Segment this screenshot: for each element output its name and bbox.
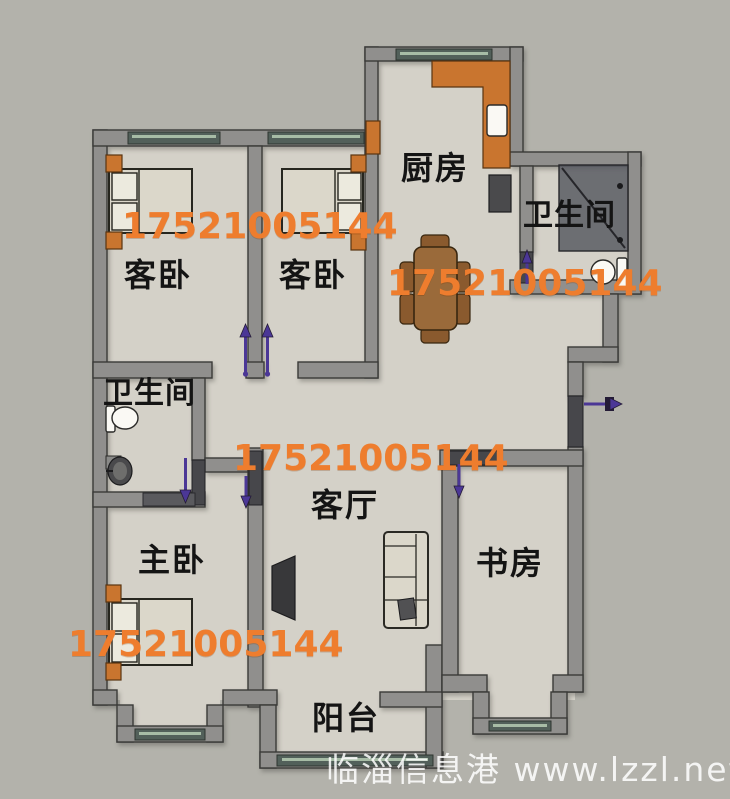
watermark-phone: 17521005144 — [122, 209, 398, 245]
room-label-living-room: 客厅 — [311, 488, 379, 523]
room-label-bathroom-1: 卫生间 — [523, 199, 616, 232]
kitchen-sink — [487, 105, 507, 136]
pillow — [112, 173, 137, 200]
window-glass — [272, 135, 360, 138]
wall-segment — [442, 675, 487, 692]
wall-segment — [248, 146, 262, 378]
watermark-phone: 17521005144 — [68, 627, 344, 663]
door-arrow-foot — [243, 371, 248, 376]
wall-segment — [93, 130, 107, 705]
watermark-site: 临淄信息港 www.lzzl.net — [326, 753, 730, 786]
nightstand — [106, 585, 121, 602]
wall-segment — [298, 362, 378, 378]
shower-knob — [617, 237, 623, 243]
wall-segment — [568, 362, 583, 396]
wall-segment — [380, 692, 442, 707]
room-label-master-bedroom: 主卧 — [138, 543, 206, 578]
wall-segment — [510, 152, 641, 166]
wall-segment — [568, 447, 583, 692]
toilet-icon — [112, 407, 138, 429]
nightstand — [106, 232, 122, 249]
washbasin-bowl — [113, 462, 127, 480]
sofa-pillow — [398, 598, 417, 620]
wall-segment — [553, 675, 583, 692]
pillow — [338, 173, 361, 200]
window-glass — [139, 732, 201, 735]
watermark-phone: 17521005144 — [233, 441, 509, 477]
wall-segment — [568, 347, 618, 362]
room-label-guest-bedroom-2: 客卧 — [279, 258, 347, 293]
room-label-balcony: 阳台 — [312, 701, 380, 736]
room-label-bathroom-2: 卫生间 — [103, 377, 196, 410]
nightstand — [106, 155, 122, 172]
wall-segment — [93, 362, 212, 378]
wall-segment — [442, 466, 458, 692]
wall-segment — [510, 47, 523, 166]
entry-door-leaf — [568, 396, 583, 447]
shower-knob — [617, 183, 623, 189]
room-label-kitchen: 厨房 — [401, 151, 469, 186]
door-arrow-foot — [265, 371, 270, 376]
nightstand — [351, 155, 366, 172]
window-glass — [132, 135, 216, 138]
wall-segment — [246, 362, 264, 378]
floor-plan: 客卧 客卧 厨房 卫生间 卫生间 主卧 客厅 书房 阳台 17521005144… — [0, 0, 730, 799]
sofa — [384, 532, 428, 628]
fridge-icon — [489, 175, 511, 212]
tv-icon — [272, 556, 295, 620]
room-label-guest-bedroom-1: 客卧 — [124, 258, 192, 293]
wall-segment — [223, 690, 277, 705]
room-label-study: 书房 — [476, 546, 544, 581]
kitchen-cabinet — [366, 121, 380, 154]
entry-door-arrow-head — [610, 398, 622, 410]
window-glass — [400, 52, 488, 55]
watermark-phone: 17521005144 — [387, 266, 663, 302]
wall-segment — [93, 690, 117, 705]
window-glass — [493, 724, 547, 727]
nightstand — [106, 663, 121, 680]
